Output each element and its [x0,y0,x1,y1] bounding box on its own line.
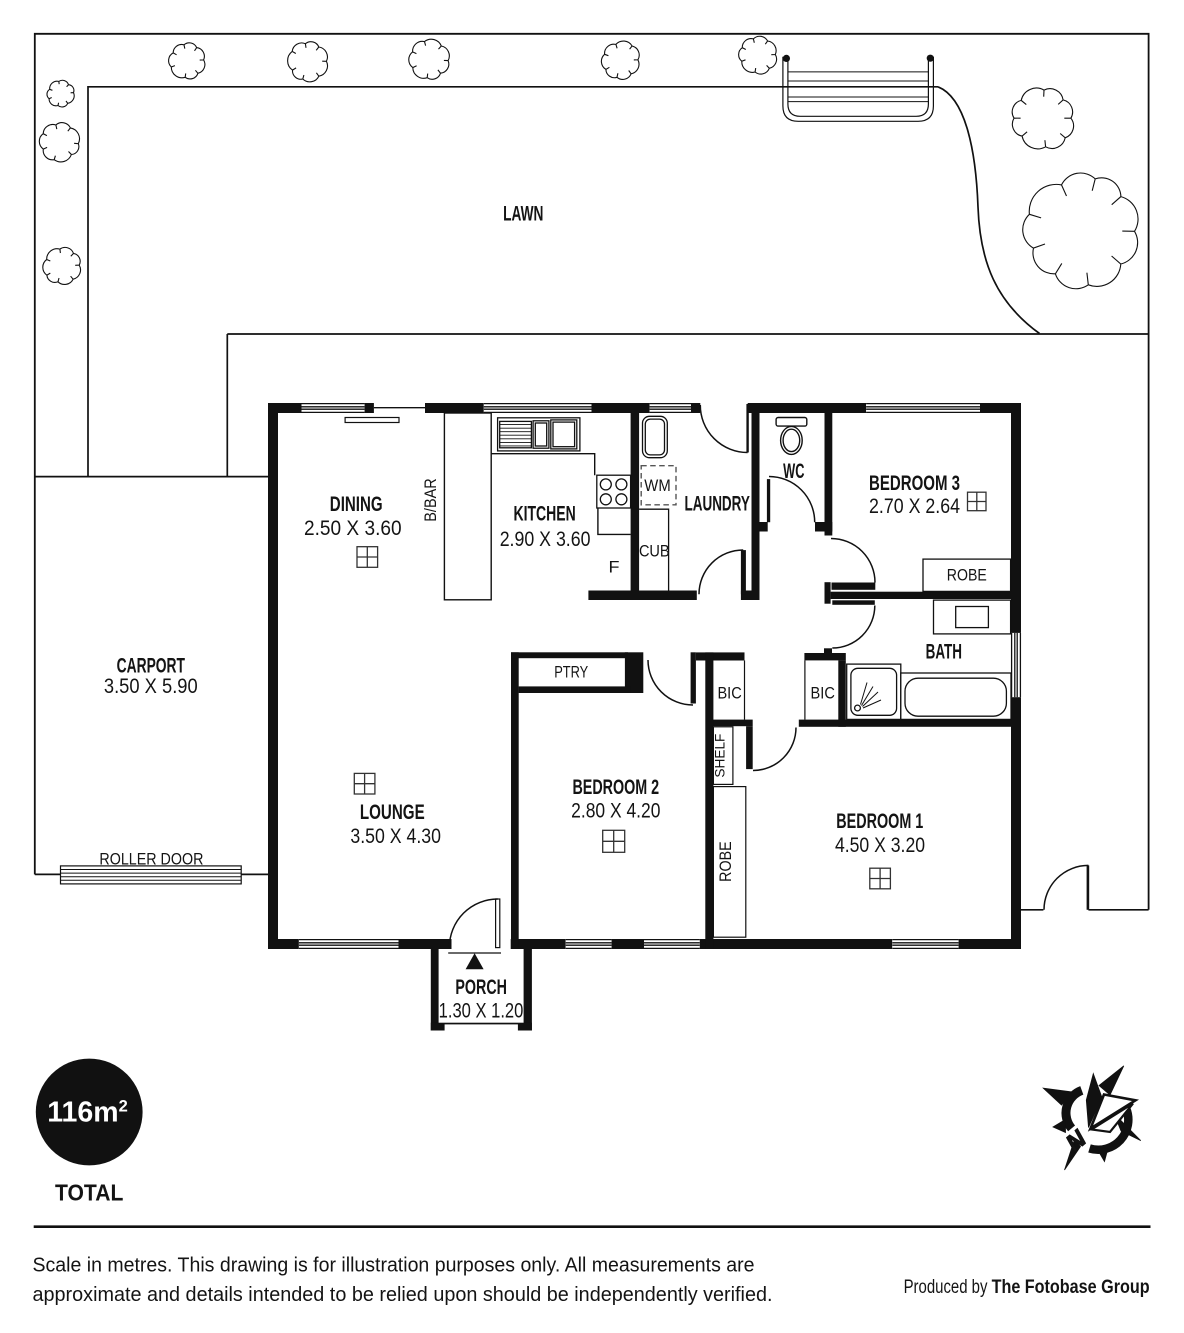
svg-text:B/BAR: B/BAR [421,478,440,522]
svg-text:4.50 X 3.20: 4.50 X 3.20 [835,833,925,857]
svg-text:Produced by The Fotobase Group: Produced by The Fotobase Group [904,1277,1150,1298]
svg-text:WM: WM [644,476,670,495]
svg-text:BEDROOM 2: BEDROOM 2 [572,775,659,799]
svg-text:ROLLER DOOR: ROLLER DOOR [99,849,203,868]
svg-text:3.50 X 5.90: 3.50 X 5.90 [104,674,198,698]
svg-text:2.90 X 3.60: 2.90 X 3.60 [500,527,591,551]
svg-text:BATH: BATH [926,639,962,663]
svg-text:approximate and details intend: approximate and details intended to be r… [33,1284,773,1306]
svg-text:LAUNDRY: LAUNDRY [684,491,750,515]
svg-text:F: F [609,557,620,576]
svg-text:BIC: BIC [717,683,741,702]
svg-text:BEDROOM 3: BEDROOM 3 [869,471,960,495]
svg-text:2.80 X 4.20: 2.80 X 4.20 [571,799,660,823]
svg-text:3.50 X 4.30: 3.50 X 4.30 [350,824,441,848]
svg-text:CUB: CUB [639,542,670,561]
svg-text:PTRY: PTRY [554,662,588,681]
svg-text:2.50 X 3.60: 2.50 X 3.60 [304,516,402,540]
svg-text:ROBE: ROBE [947,566,987,585]
svg-text:Scale in metres. This drawing: Scale in metres. This drawing is for ill… [33,1255,755,1277]
svg-text:DINING: DINING [330,492,383,516]
svg-text:WC: WC [783,459,804,483]
svg-text:BIC: BIC [811,683,835,702]
svg-text:116m2: 116m2 [47,1097,128,1129]
svg-text:KITCHEN: KITCHEN [513,502,575,526]
svg-text:2.70 X 2.64: 2.70 X 2.64 [869,494,960,518]
svg-text:1.30 X 1.20: 1.30 X 1.20 [439,998,524,1022]
svg-text:BEDROOM 1: BEDROOM 1 [836,809,923,833]
svg-text:SHELF: SHELF [713,734,728,778]
svg-text:TOTAL: TOTAL [55,1180,123,1206]
svg-text:ROBE: ROBE [716,841,735,882]
svg-text:PORCH: PORCH [455,975,507,999]
svg-text:LAWN: LAWN [503,201,543,225]
svg-text:LOUNGE: LOUNGE [360,800,425,824]
